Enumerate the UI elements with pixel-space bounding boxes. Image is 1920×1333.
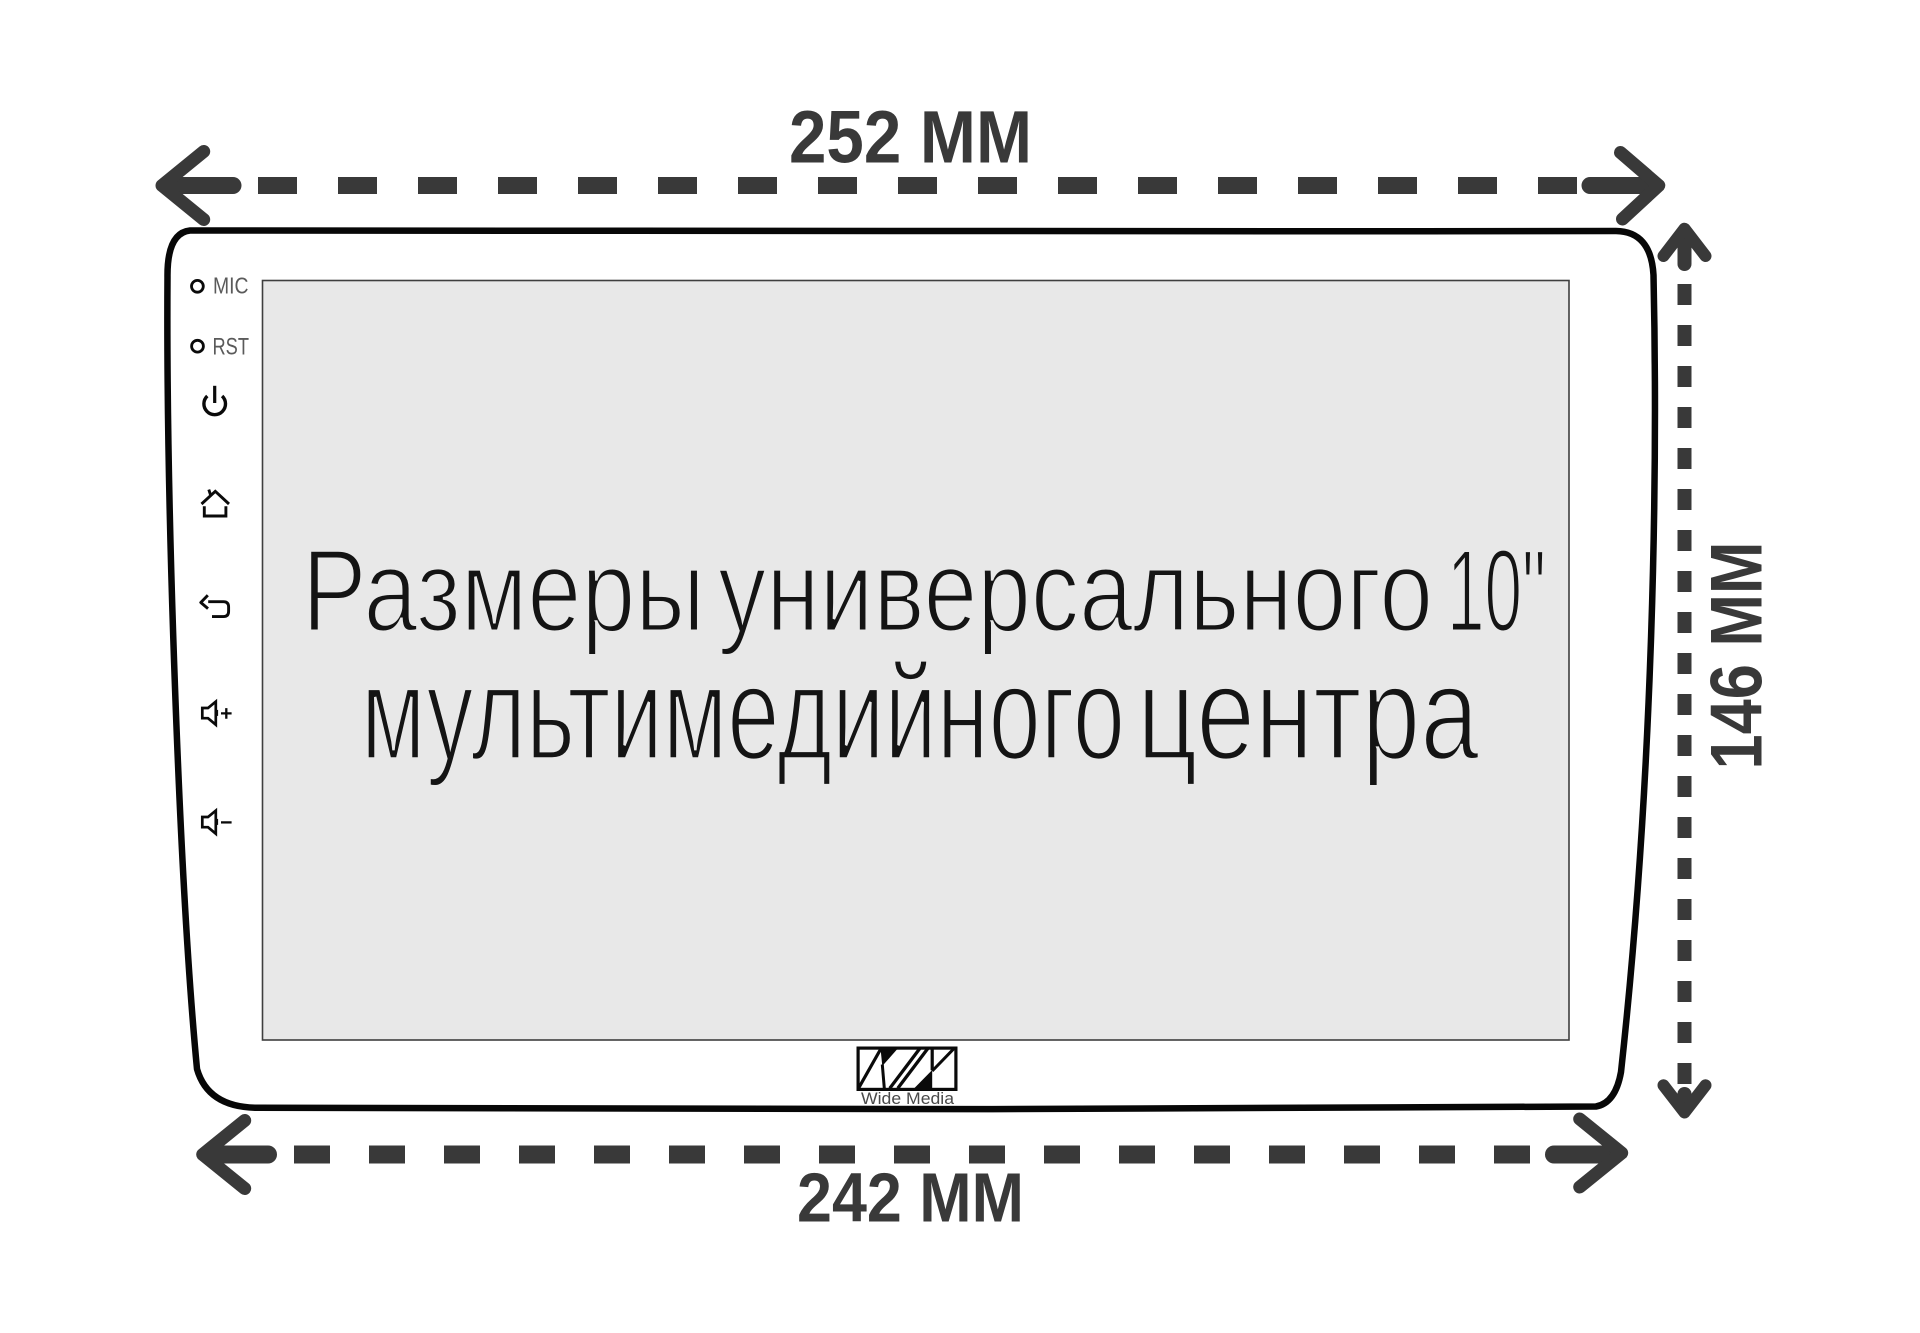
svg-text:252 MM: 252 MM [789,96,1032,179]
svg-text:MIC: MIC [213,273,249,299]
svg-text:RST: RST [213,334,250,361]
svg-text:центра: центра [1137,639,1480,788]
svg-text:Wide Media: Wide Media [861,1089,955,1108]
svg-text:универсального: универсального [718,525,1433,656]
svg-text:146 MM: 146 MM [1697,542,1778,770]
svg-text:10": 10" [1447,525,1546,656]
svg-text:242 MM: 242 MM [797,1159,1024,1237]
svg-text:Размеры: Размеры [302,525,705,656]
svg-text:мультимедийного: мультимедийного [361,639,1125,788]
